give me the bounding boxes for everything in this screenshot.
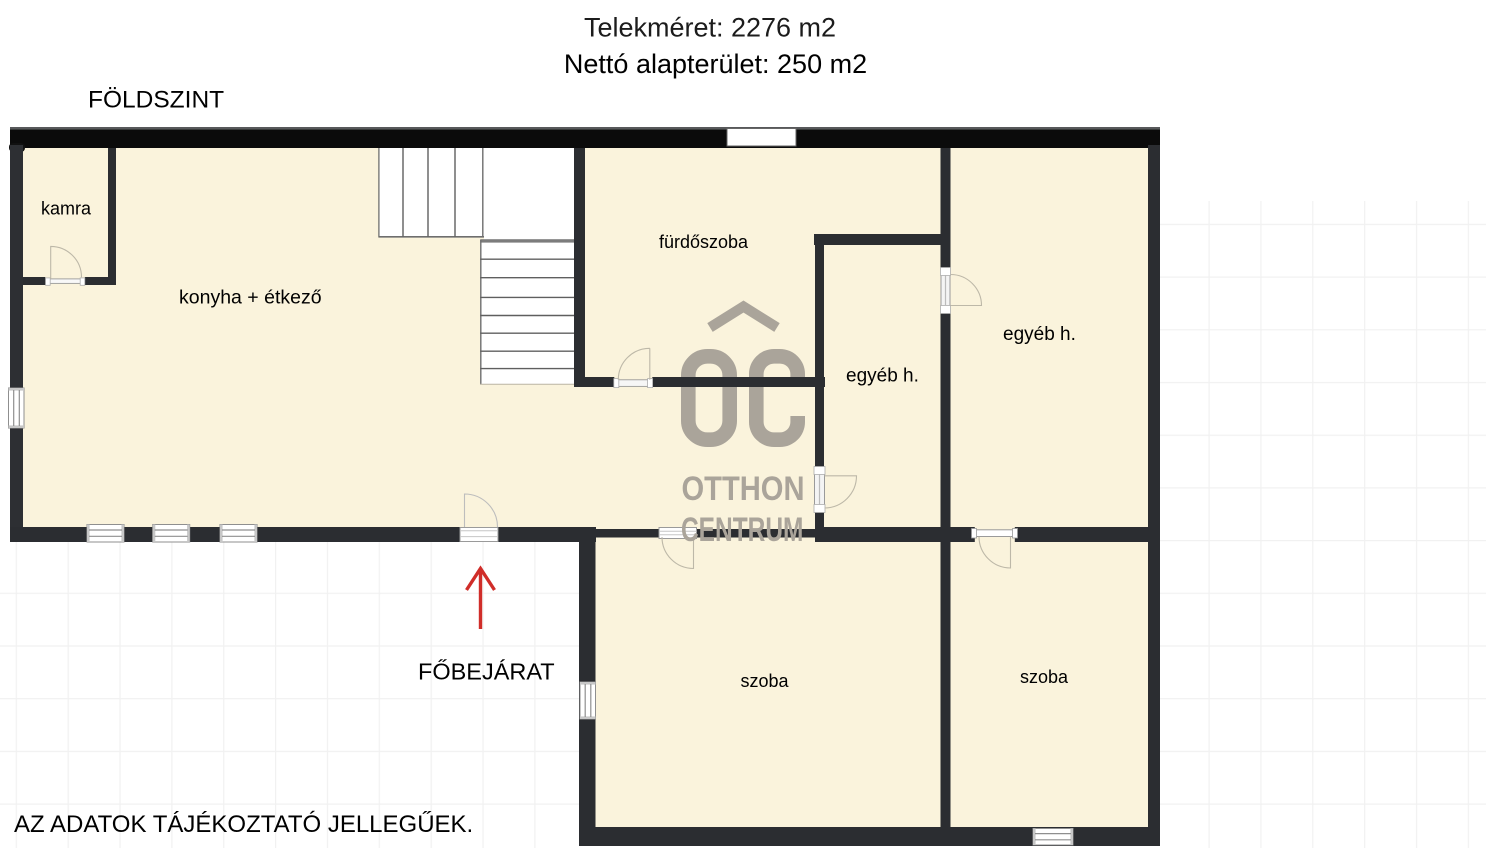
svg-text:AZ ADATOK TÁJÉKOZTATÓ JELLEGŰE: AZ ADATOK TÁJÉKOZTATÓ JELLEGŰEK.	[14, 811, 473, 838]
svg-text:szoba: szoba	[741, 671, 790, 691]
svg-text:OTTHON: OTTHON	[682, 469, 805, 508]
svg-text:egyéb h.: egyéb h.	[1003, 324, 1076, 345]
svg-text:CENTRUM: CENTRUM	[681, 511, 803, 549]
svg-text:Telekméret: 2276 m2: Telekméret: 2276 m2	[584, 13, 836, 43]
svg-text:FŐBEJÁRAT: FŐBEJÁRAT	[418, 659, 555, 685]
svg-text:konyha + étkező: konyha + étkező	[179, 287, 322, 309]
svg-text:kamra: kamra	[41, 199, 92, 219]
svg-text:FÖLDSZINT: FÖLDSZINT	[88, 87, 224, 114]
svg-text:szoba: szoba	[1020, 667, 1069, 687]
svg-text:Nettó alapterület: 250 m2: Nettó alapterület: 250 m2	[564, 49, 867, 79]
svg-text:egyéb h.: egyéb h.	[846, 366, 919, 387]
svg-text:fürdőszoba: fürdőszoba	[659, 232, 749, 252]
